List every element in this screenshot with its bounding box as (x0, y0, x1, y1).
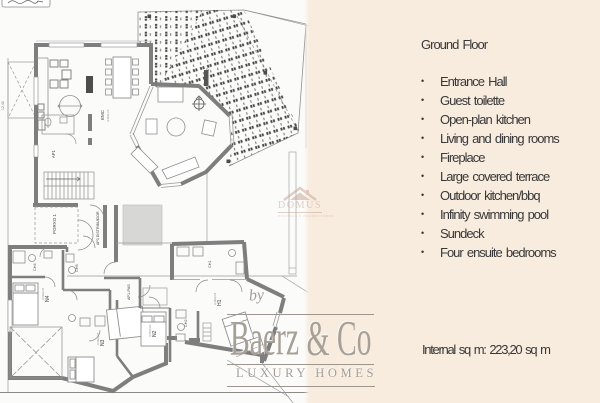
svg-text:CH1: CH1 (208, 260, 212, 268)
svg-text:AP1-PAS: AP1-PAS (127, 284, 131, 300)
svg-text:N3: N3 (100, 339, 106, 346)
svg-text:12,40: 12,40 (1, 101, 5, 110)
svg-text:CH2: CH2 (184, 319, 188, 327)
svg-text:N2: N2 (152, 330, 158, 337)
svg-text:AP3 DISTRIBUIDOR: AP3 DISTRIBUIDOR (96, 211, 100, 245)
svg-text:CH4: CH4 (33, 263, 37, 271)
svg-text:PORXO 1: PORXO 1 (52, 213, 57, 234)
svg-text:4,30x1,10: 4,30x1,10 (106, 109, 110, 122)
svg-text:AP1: AP1 (51, 149, 56, 158)
svg-text:H1: H1 (217, 299, 223, 306)
svg-text:3,05x3,00: 3,05x3,00 (148, 324, 152, 337)
svg-text:EMC: EMC (100, 109, 105, 120)
svg-text:3,60x3,37: 3,60x3,37 (41, 287, 45, 300)
svg-text:3,30x3,15: 3,30x3,15 (96, 332, 100, 345)
svg-text:3,28x3,01: 3,28x3,01 (213, 292, 217, 305)
svg-text:CH5: CH5 (75, 264, 79, 272)
svg-text:N4: N4 (45, 295, 51, 302)
